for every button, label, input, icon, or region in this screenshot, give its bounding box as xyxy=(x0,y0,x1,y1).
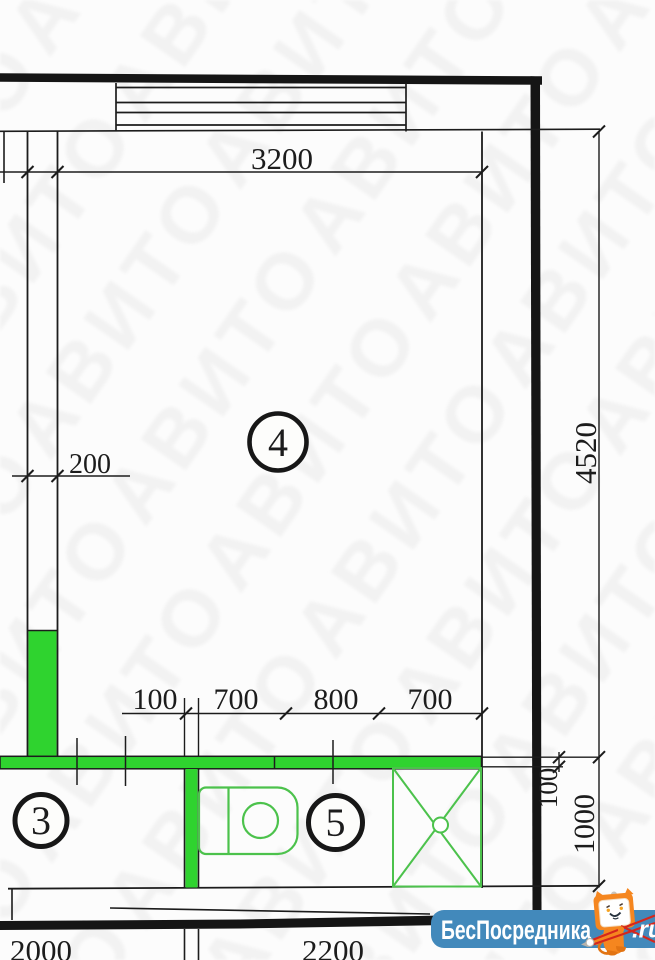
svg-text:700: 700 xyxy=(408,683,453,716)
svg-text:5: 5 xyxy=(326,800,346,845)
svg-text:4: 4 xyxy=(268,420,288,465)
svg-text:БесПосредника: БесПосредника xyxy=(441,915,592,945)
svg-text:700: 700 xyxy=(214,683,259,716)
svg-text:.ru: .ru xyxy=(632,917,655,944)
svg-text:4520: 4520 xyxy=(568,422,603,484)
svg-text:2000: 2000 xyxy=(10,933,72,960)
svg-text:800: 800 xyxy=(314,683,359,716)
svg-text:200: 200 xyxy=(69,449,111,480)
svg-text:3: 3 xyxy=(31,798,51,843)
svg-text:1000: 1000 xyxy=(568,794,601,854)
svg-text:100: 100 xyxy=(533,768,563,809)
svg-text:100: 100 xyxy=(133,683,178,716)
svg-text:2200: 2200 xyxy=(302,933,364,960)
svg-text:3200: 3200 xyxy=(251,141,313,176)
